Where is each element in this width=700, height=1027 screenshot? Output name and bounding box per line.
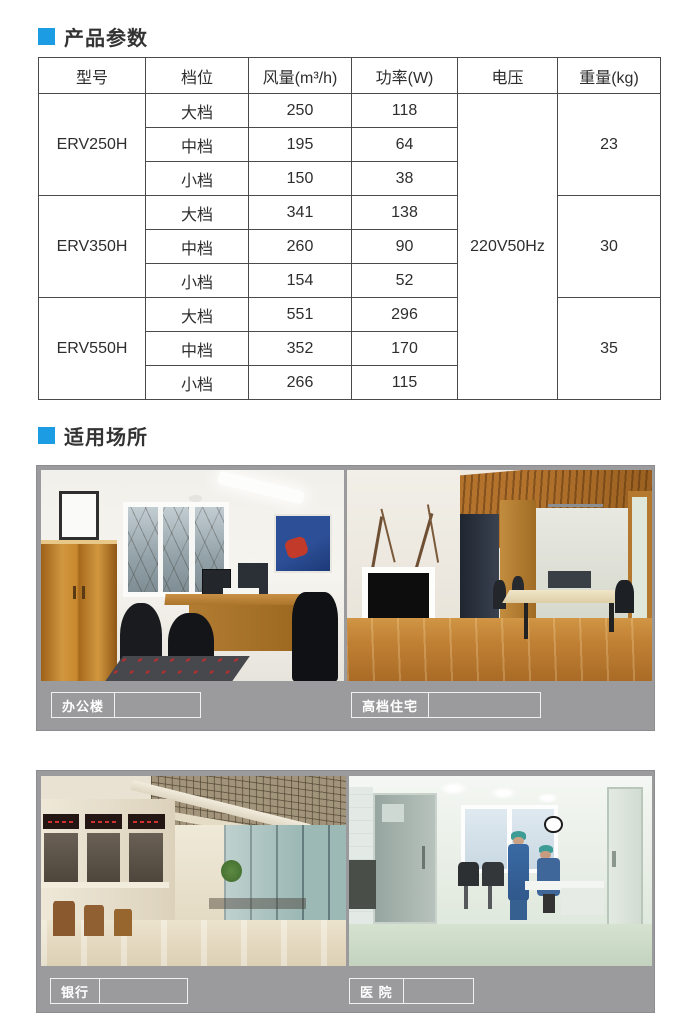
- cell-power: 296: [352, 298, 458, 332]
- col-header-weight: 重量(kg): [558, 58, 661, 94]
- cell-airflow: 341: [249, 196, 352, 230]
- bank-led-text: [91, 821, 117, 823]
- place-label: 银行: [51, 979, 100, 1003]
- residence-fireplace: [368, 573, 429, 619]
- place-tag-office: 办公楼: [51, 692, 201, 718]
- cell-gear: 小档: [146, 264, 249, 298]
- cell-power: 170: [352, 332, 458, 366]
- place-label-extension: [115, 693, 200, 717]
- cell-gear: 中档: [146, 230, 249, 264]
- office-ceiling-lamp: [217, 470, 305, 504]
- hospital-desk-front: [561, 888, 603, 915]
- cell-power: 90: [352, 230, 458, 264]
- bank-led-text: [133, 821, 159, 823]
- office-papers: [223, 588, 259, 594]
- bank-led-text: [48, 821, 74, 823]
- col-header-airflow: 风量(m³/h): [249, 58, 352, 94]
- section-bullet-icon: [38, 427, 55, 444]
- cell-airflow: 352: [249, 332, 352, 366]
- residence-kitchen-counter: [548, 571, 591, 588]
- cell-gear: 大档: [146, 94, 249, 128]
- hospital-left-door: [373, 793, 437, 924]
- hospital-floor: [349, 924, 652, 966]
- bank-led-sign: [128, 814, 165, 829]
- section-product-header: 产品参数: [38, 22, 148, 51]
- cell-power: 52: [352, 264, 458, 298]
- col-header-model: 型号: [39, 58, 146, 94]
- office-cabinet-handle: [73, 586, 76, 599]
- cell-airflow: 195: [249, 128, 352, 162]
- residence-table-leg: [609, 603, 614, 633]
- hospital-door-window: [382, 804, 403, 822]
- office-window-mullion: [158, 507, 164, 592]
- cell-model: ERV550H: [39, 298, 146, 400]
- residence-table-leg: [524, 603, 529, 639]
- hospital-chair-leg: [464, 886, 468, 909]
- office-painting: [274, 514, 332, 573]
- residence-pendant-rail: [548, 504, 603, 507]
- place-label: 高档住宅: [352, 693, 429, 717]
- hospital-staff-scrubs: [508, 844, 529, 901]
- cell-weight: 35: [558, 298, 661, 400]
- cell-gear: 小档: [146, 162, 249, 196]
- section-places-title: 适用场所: [64, 421, 148, 450]
- table-header-row: 型号 档位 风量(m³/h) 功率(W) 电压 重量(kg): [39, 58, 661, 94]
- hospital-door-handle: [612, 851, 616, 867]
- cell-voltage: 220V50Hz: [458, 94, 558, 400]
- hospital-stool: [543, 894, 555, 913]
- hospital-chair-leg: [488, 886, 492, 909]
- office-certificate-frame: [59, 491, 98, 540]
- cell-power: 38: [352, 162, 458, 196]
- hospital-ceiling-light: [440, 782, 467, 795]
- bank-photo: [41, 776, 346, 966]
- cell-model: ERV250H: [39, 94, 146, 196]
- place-label: 办公楼: [52, 693, 115, 717]
- table-row: ERV250H 大档 250 118 220V50Hz 23: [39, 94, 661, 128]
- col-header-power: 功率(W): [352, 58, 458, 94]
- section-bullet-icon: [38, 28, 55, 45]
- cell-airflow: 260: [249, 230, 352, 264]
- residence-chair: [615, 580, 633, 614]
- cell-gear: 大档: [146, 298, 249, 332]
- residence-photo: [347, 470, 652, 681]
- hospital-door-handle: [422, 846, 425, 869]
- bank-teller-window: [129, 833, 163, 882]
- hospital-staff-legs: [510, 900, 527, 921]
- office-painting-detail: [283, 535, 309, 560]
- residence-floor-planks: [347, 618, 652, 681]
- page: 产品参数 型号 档位 风量(m³/h) 功率(W) 电压 重量(kg) ERV2…: [0, 0, 700, 1027]
- cell-airflow: 154: [249, 264, 352, 298]
- cell-power: 118: [352, 94, 458, 128]
- hospital-chair: [458, 862, 479, 887]
- bank-waiting-seats: [209, 898, 307, 909]
- office-cabinet: [41, 544, 117, 681]
- hospital-ceiling-light: [537, 793, 558, 803]
- bank-teller-window: [44, 833, 78, 882]
- bank-counter-ledge: [41, 882, 169, 888]
- place-label: 医 院: [350, 979, 404, 1003]
- hospital-photo: [349, 776, 652, 966]
- place-tag-bank: 银行: [50, 978, 188, 1004]
- hospital-ceiling-light: [491, 787, 515, 798]
- office-photo: [41, 470, 344, 681]
- section-product-title: 产品参数: [64, 22, 148, 51]
- cell-airflow: 250: [249, 94, 352, 128]
- bank-stool: [114, 909, 132, 936]
- office-cabinet-handle: [82, 586, 85, 599]
- hospital-right-door: [607, 787, 643, 928]
- cell-gear: 大档: [146, 196, 249, 230]
- cell-gear: 中档: [146, 128, 249, 162]
- place-tag-hospital: 医 院: [349, 978, 474, 1004]
- cell-airflow: 266: [249, 366, 352, 400]
- cell-power: 138: [352, 196, 458, 230]
- cell-power: 64: [352, 128, 458, 162]
- bank-stool: [84, 905, 104, 935]
- cell-weight: 30: [558, 196, 661, 298]
- bank-stool: [53, 901, 74, 935]
- cell-model: ERV350H: [39, 196, 146, 298]
- spec-table: 型号 档位 风量(m³/h) 功率(W) 电压 重量(kg) ERV250H 大…: [38, 57, 661, 400]
- section-places-header: 适用场所: [38, 421, 148, 450]
- office-carpet: [105, 656, 250, 681]
- office-window-mullion: [189, 507, 195, 592]
- bank-led-sign: [43, 814, 80, 829]
- cell-weight: 23: [558, 94, 661, 196]
- table-row: ERV550H 大档 551 296 35: [39, 298, 661, 332]
- col-header-voltage: 电压: [458, 58, 558, 94]
- place-label-extension: [100, 979, 187, 1003]
- hospital-chair: [482, 862, 503, 887]
- cell-airflow: 150: [249, 162, 352, 196]
- cell-gear: 小档: [146, 366, 249, 400]
- table-row: ERV350H 大档 341 138 30: [39, 196, 661, 230]
- bank-teller-window: [87, 833, 121, 882]
- cell-power: 115: [352, 366, 458, 400]
- office-chair: [292, 592, 337, 681]
- residence-wood-floor: [347, 618, 652, 681]
- place-label-extension: [429, 693, 540, 717]
- residence-dining-table: [502, 590, 631, 603]
- residence-window-pane: [632, 497, 647, 619]
- hospital-cart: [349, 860, 376, 909]
- places-block-1: 办公楼 高档住宅: [36, 465, 655, 731]
- cell-airflow: 551: [249, 298, 352, 332]
- bank-led-sign: [85, 814, 122, 829]
- place-label-extension: [404, 979, 473, 1003]
- cell-gear: 中档: [146, 332, 249, 366]
- col-header-gear: 档位: [146, 58, 249, 94]
- hospital-wall-clock: [544, 816, 562, 833]
- residence-chair: [493, 580, 505, 610]
- places-block-2: 银行 医 院: [36, 770, 655, 1013]
- place-tag-residence: 高档住宅: [351, 692, 541, 718]
